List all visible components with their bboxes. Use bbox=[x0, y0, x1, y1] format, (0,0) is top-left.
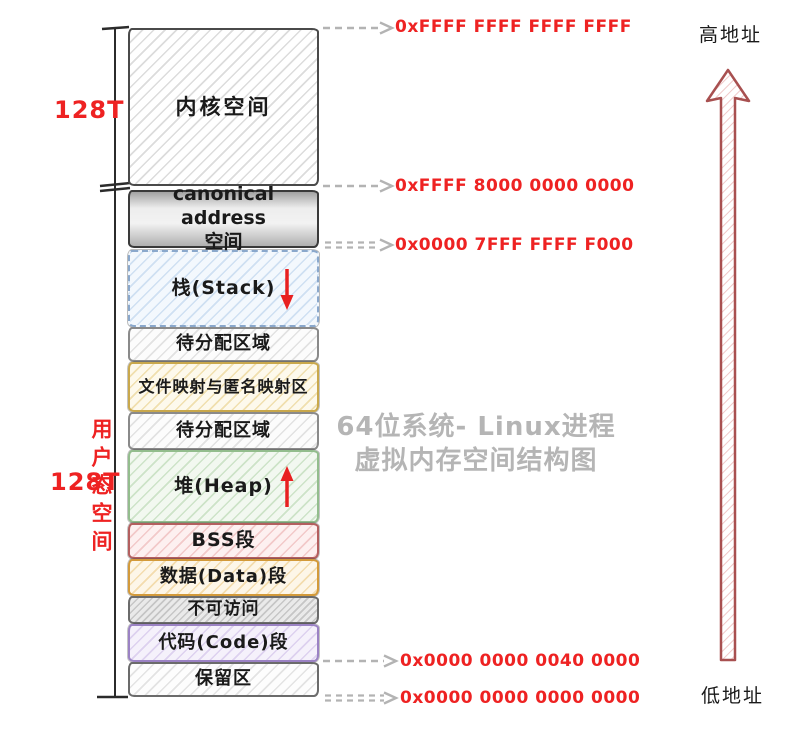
segment-canonical-address: canonical address 空间 bbox=[128, 190, 319, 248]
kernel-size-label: 128T bbox=[54, 96, 124, 124]
segment-label: 待分配区域 bbox=[176, 333, 271, 356]
heap-growth-arrow-icon bbox=[279, 464, 295, 510]
address-label-code-start: 0x0000 0000 0040 0000 bbox=[400, 651, 640, 671]
low-address-label: 低地址 bbox=[701, 681, 764, 708]
address-pointer-arrow bbox=[321, 238, 399, 252]
address-label-stack-top: 0x0000 7FFF FFFF F000 bbox=[395, 235, 634, 255]
stack-growth-arrow-icon bbox=[279, 266, 295, 312]
segment-label: 内核空间 bbox=[176, 94, 272, 120]
segment-label: 堆(Heap) bbox=[174, 475, 273, 499]
segment-inaccessible: 不可访问 bbox=[128, 596, 319, 624]
segment-unallocated-lower: 待分配区域 bbox=[128, 412, 319, 450]
segment-label: 文件映射与匿名映射区 bbox=[138, 377, 308, 397]
diagram-title-line1: 64位系统- Linux进程 bbox=[336, 412, 615, 442]
user-space-label: 用户态空间 bbox=[90, 418, 111, 558]
segment-label: 栈(Stack) bbox=[172, 277, 276, 301]
address-pointer-arrow bbox=[321, 21, 399, 35]
segment-label: 代码(Code)段 bbox=[158, 632, 288, 655]
address-axis-arrow bbox=[698, 64, 760, 666]
address-label-top: 0xFFFF FFFF FFFF FFFF bbox=[395, 17, 632, 37]
segment-reserved: 保留区 bbox=[128, 662, 319, 697]
address-pointer-arrow bbox=[321, 691, 403, 705]
segment-label: 待分配区域 bbox=[176, 420, 271, 443]
address-label-kernel-bottom: 0xFFFF 8000 0000 0000 bbox=[395, 176, 634, 196]
segment-label: 数据(Data)段 bbox=[160, 566, 287, 589]
segment-label: canonical address 空间 bbox=[130, 183, 317, 254]
high-address-label: 高地址 bbox=[699, 20, 762, 47]
address-pointer-arrow bbox=[321, 179, 399, 193]
address-label-zero: 0x0000 0000 0000 0000 bbox=[400, 688, 640, 708]
segment-file-mapping: 文件映射与匿名映射区 bbox=[128, 362, 319, 412]
segment-kernel-space: 内核空间 bbox=[128, 28, 319, 186]
diagram-title: 64位系统- Linux进程 虚拟内存空间结构图 bbox=[326, 411, 626, 479]
segment-heap: 堆(Heap) bbox=[128, 450, 319, 523]
segment-data: 数据(Data)段 bbox=[128, 559, 319, 596]
diagram-title-line2: 虚拟内存空间结构图 bbox=[354, 446, 597, 476]
memory-layout-diagram: 128T 128T 用户态空间 内核空间 canonical address 空… bbox=[0, 0, 804, 744]
segment-label: 不可访问 bbox=[188, 599, 260, 620]
address-pointer-arrow bbox=[321, 654, 403, 668]
segment-unallocated-upper: 待分配区域 bbox=[128, 327, 319, 362]
segment-label: 保留区 bbox=[195, 668, 252, 691]
segment-code: 代码(Code)段 bbox=[128, 624, 319, 662]
segment-label: BSS段 bbox=[192, 529, 256, 553]
segment-bss: BSS段 bbox=[128, 523, 319, 559]
segment-stack: 栈(Stack) bbox=[128, 250, 319, 327]
